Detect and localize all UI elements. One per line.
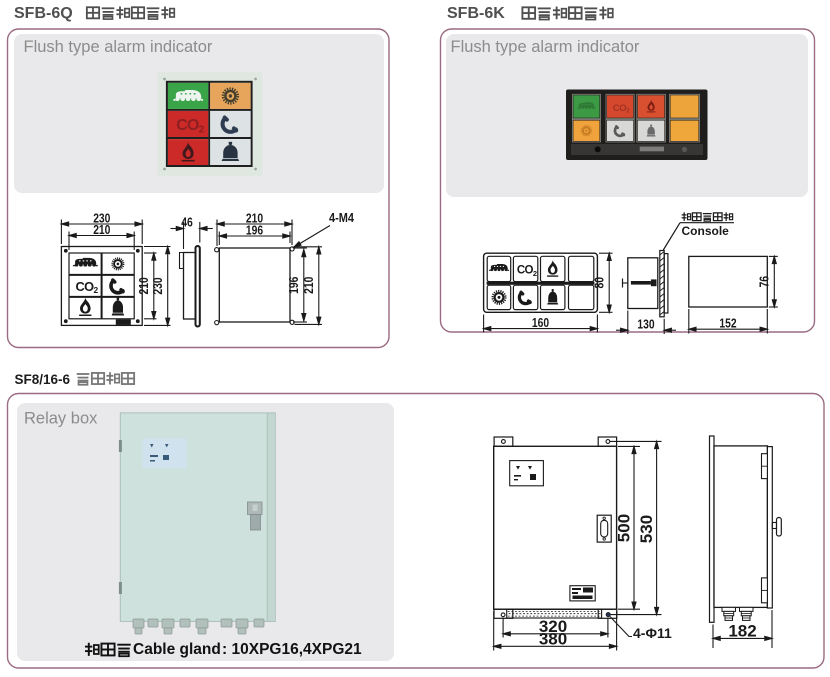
svg-text:SFB-6Q: SFB-6Q xyxy=(14,5,73,22)
svg-text:Relay box: Relay box xyxy=(24,410,98,428)
svg-text:196: 196 xyxy=(246,223,263,237)
svg-text:210: 210 xyxy=(302,277,316,294)
svg-text:210: 210 xyxy=(93,223,110,237)
svg-text:152: 152 xyxy=(719,316,736,330)
svg-text:Console: Console xyxy=(682,224,730,238)
svg-text:46: 46 xyxy=(181,215,193,229)
svg-text:SFB-6K: SFB-6K xyxy=(447,5,505,22)
svg-text:SF8/16-6: SF8/16-6 xyxy=(15,372,71,387)
svg-text:160: 160 xyxy=(532,316,549,330)
svg-text:182: 182 xyxy=(728,621,756,640)
svg-text:Cable gland:10XPG16,4XPG21: Cable gland:10XPG16,4XPG21 xyxy=(133,641,362,658)
svg-text:530: 530 xyxy=(637,515,656,543)
svg-text:80: 80 xyxy=(592,277,606,289)
svg-text:500: 500 xyxy=(615,514,634,542)
svg-text:4-M4: 4-M4 xyxy=(329,211,354,225)
svg-text:130: 130 xyxy=(637,317,654,331)
svg-text:Flush type alarm indicator: Flush type alarm indicator xyxy=(24,38,213,56)
svg-text:230: 230 xyxy=(151,277,165,294)
svg-text:210: 210 xyxy=(137,277,151,294)
svg-text:196: 196 xyxy=(287,277,301,294)
svg-text:Flush type alarm indicator: Flush type alarm indicator xyxy=(451,38,640,56)
svg-text:4-Φ11: 4-Φ11 xyxy=(633,625,672,641)
svg-text:380: 380 xyxy=(539,629,567,648)
svg-text:76: 76 xyxy=(758,276,772,288)
